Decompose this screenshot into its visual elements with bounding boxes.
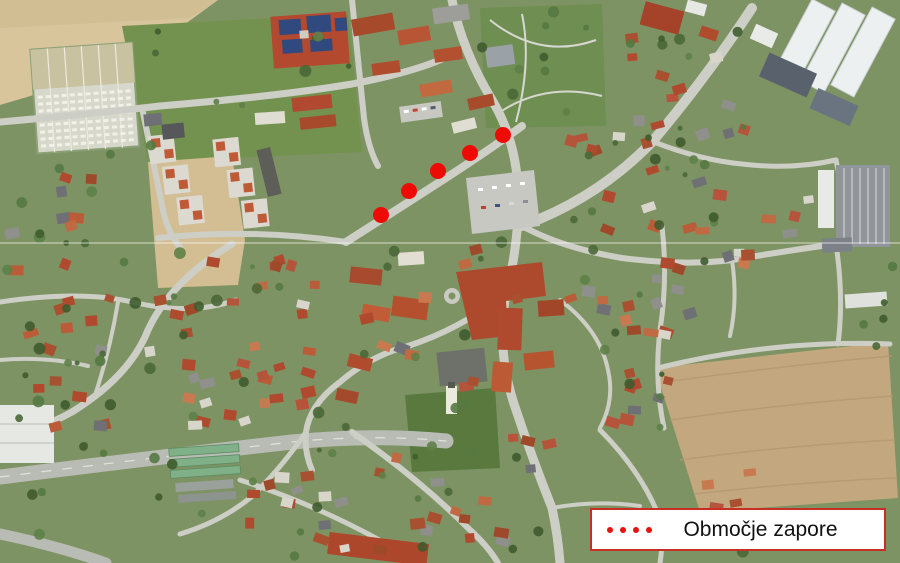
closure-marker	[401, 183, 417, 199]
closure-marker	[373, 207, 389, 223]
cemetery	[30, 43, 139, 154]
school-building	[270, 11, 349, 68]
warehouse-bottom-left	[0, 405, 54, 463]
map-viewport: Območje zapore	[0, 0, 900, 563]
legend-label: Območje zapore	[652, 519, 869, 540]
closure-dots-icon	[607, 527, 652, 533]
closure-marker	[495, 127, 511, 143]
legend: Območje zapore	[590, 508, 886, 551]
aerial-photo	[0, 0, 900, 563]
church-building	[436, 348, 487, 387]
closure-marker	[462, 145, 478, 161]
closure-marker	[430, 163, 446, 179]
